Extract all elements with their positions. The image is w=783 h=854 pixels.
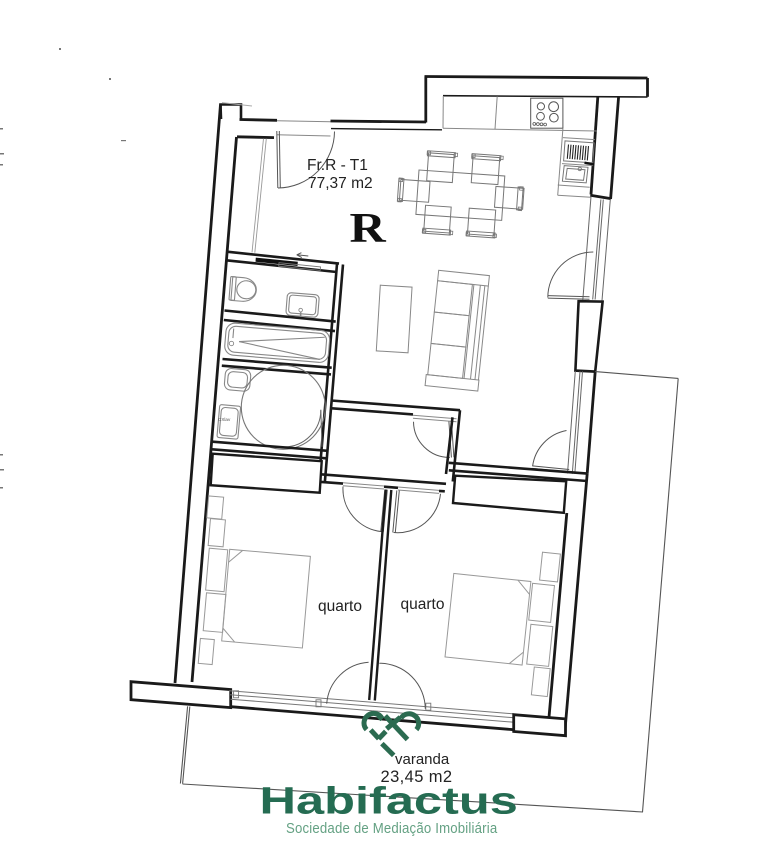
svg-text:R: R: [350, 205, 387, 252]
svg-text:CXlav: CXlav: [218, 417, 231, 422]
svg-text:varanda: varanda: [395, 751, 450, 768]
svg-text:Habifactus: Habifactus: [260, 781, 518, 823]
svg-text:77,37 m2: 77,37 m2: [308, 175, 373, 192]
svg-text:quarto: quarto: [401, 596, 445, 613]
svg-text:quarto: quarto: [318, 598, 362, 615]
svg-text:Sociedade de Mediação Imobiliá: Sociedade de Mediação Imobiliária: [286, 819, 497, 836]
svg-text:Fr.R - T1: Fr.R - T1: [307, 157, 368, 174]
